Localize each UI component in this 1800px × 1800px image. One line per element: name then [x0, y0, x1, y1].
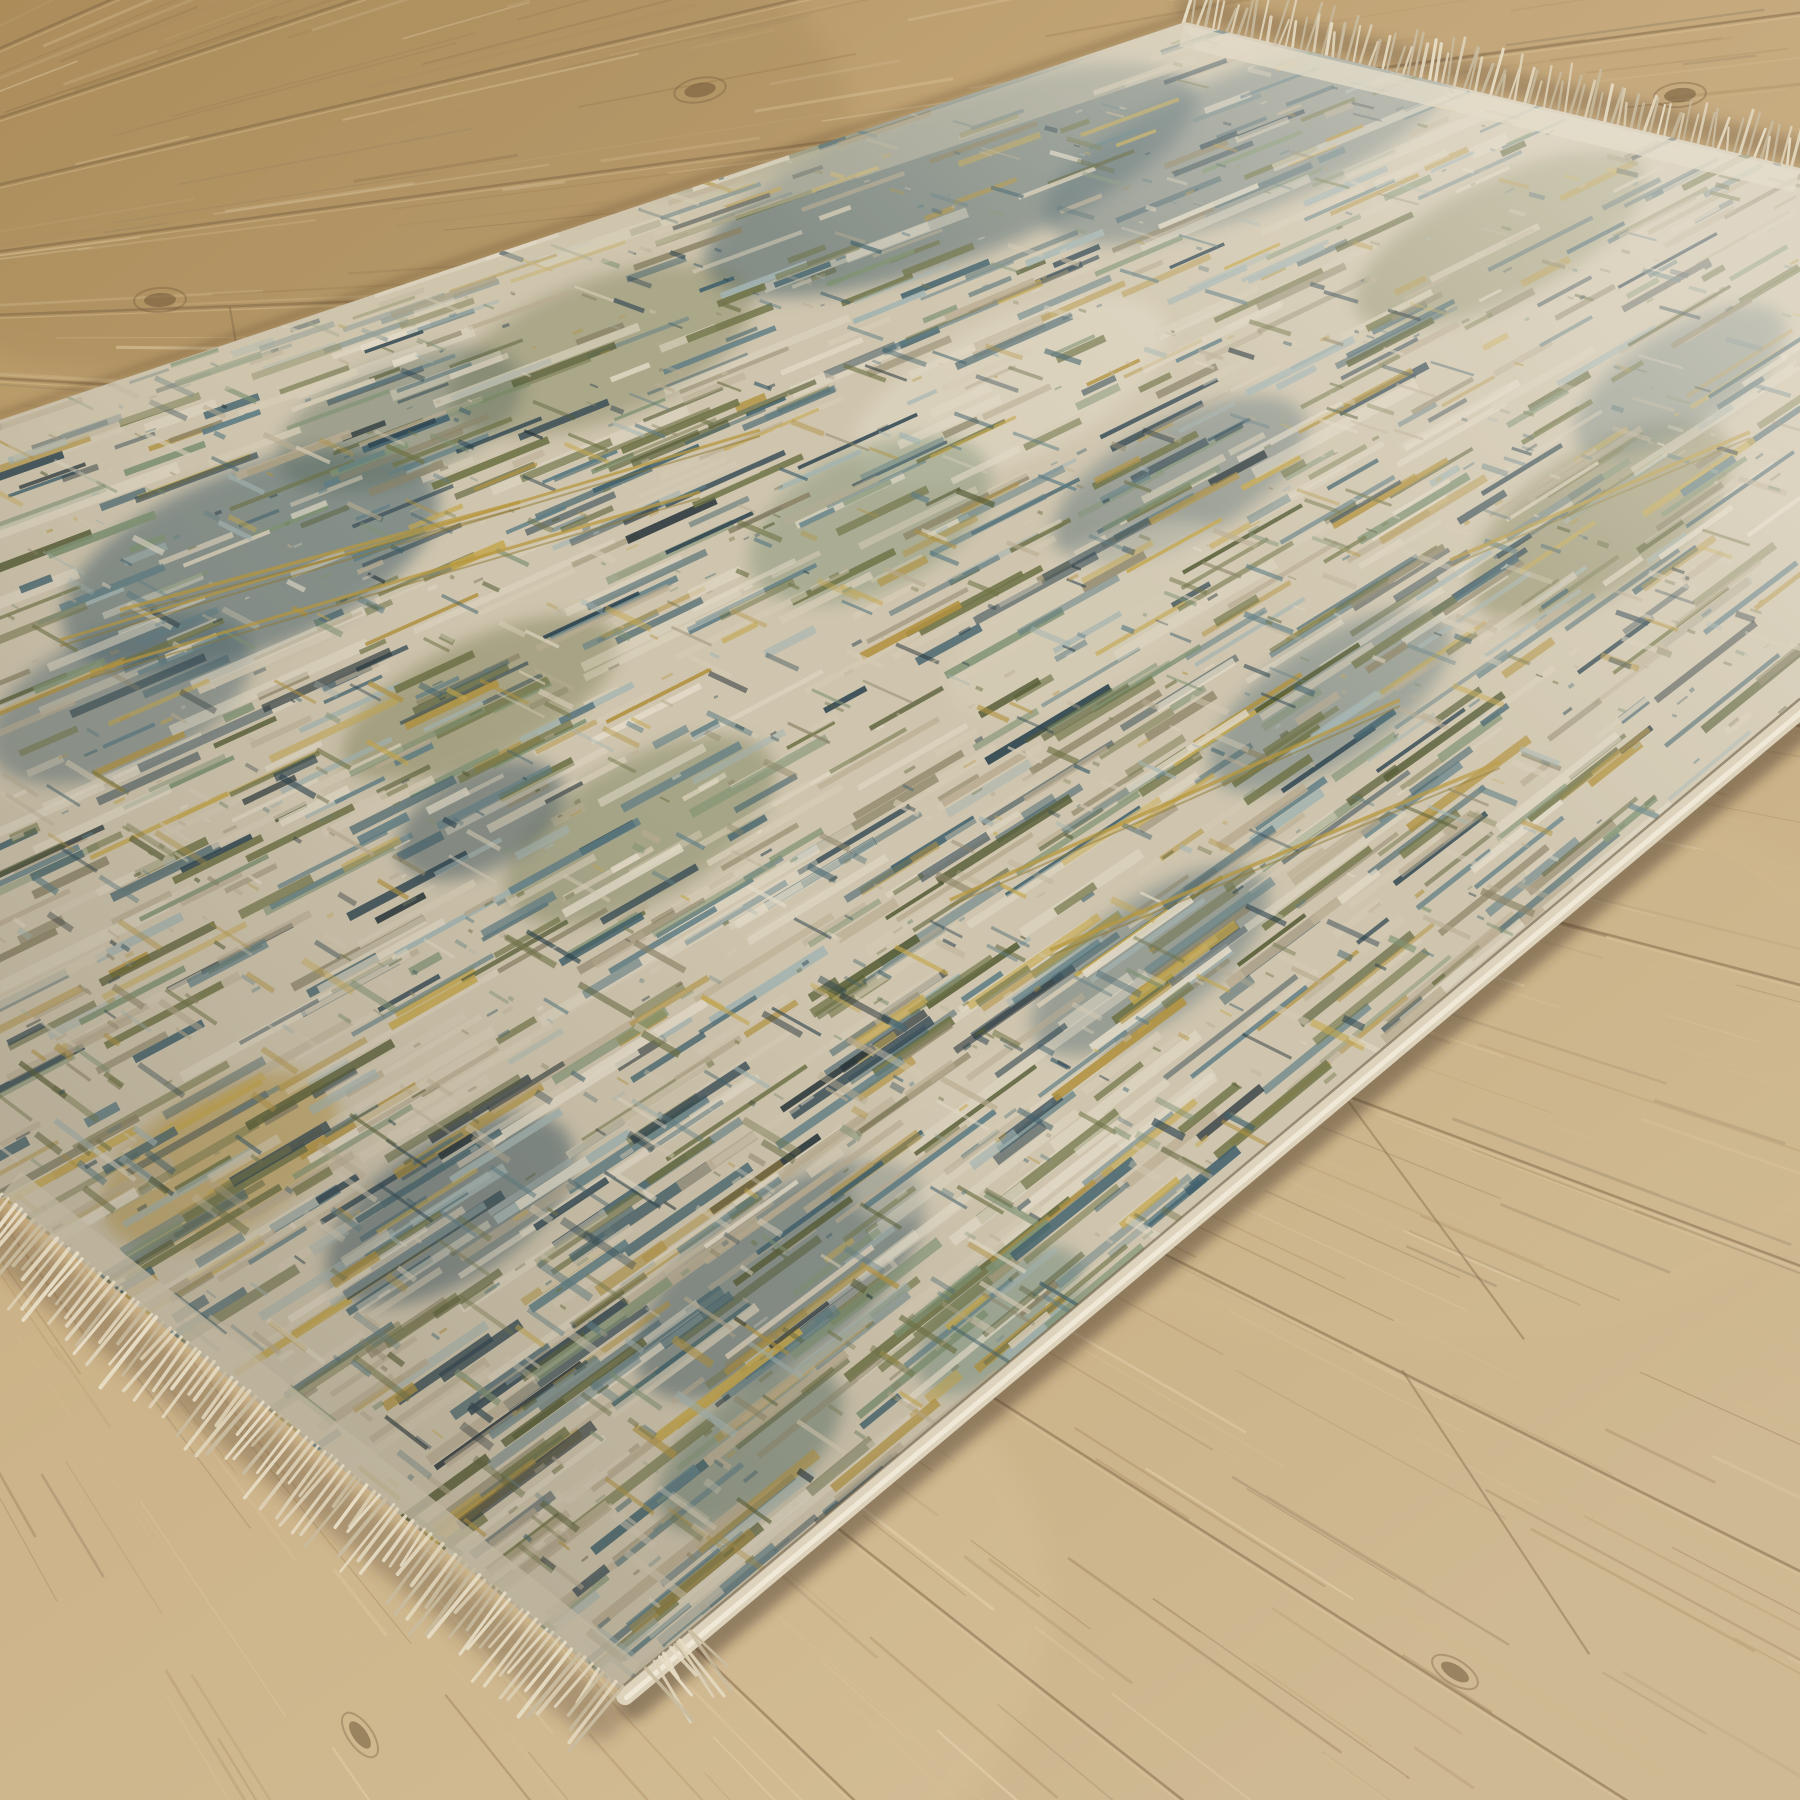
- scene-canvas: [0, 0, 1800, 1800]
- rug-on-wood-floor-photo: [0, 0, 1800, 1800]
